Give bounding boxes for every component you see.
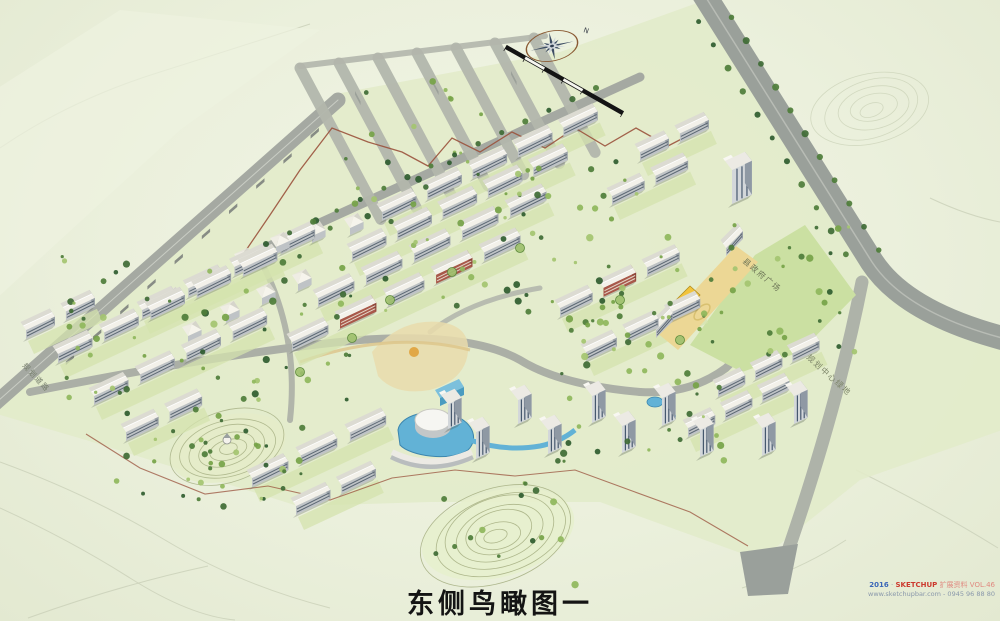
compass-north-label: N [582,26,589,35]
architectural-rendering-canvas: 规划道路 县政府广场 规划中心绿地 N 东侧鸟瞰图一 2016 · SKETCH… [0,0,1000,621]
watermark-year: 2016 [869,581,888,589]
view-title: 东侧鸟瞰图一 [0,582,1000,621]
site-plan-svg: 规划道路 县政府广场 规划中心绿地 N [0,0,1000,621]
watermark-line1: 2016 · SKETCHUP 扩展资料 VOL.46 [868,581,995,590]
site-ground [0,2,1000,560]
watermark-brand: SKETCHUP [895,581,937,589]
watermark: 2016 · SKETCHUP 扩展资料 VOL.46 www.sketchup… [868,581,995,599]
watermark-series: 扩展资料 VOL.46 [940,581,995,589]
watermark-line2: www.sketchupbar.com - 0945 96 88 80 [868,590,995,599]
watermark-separator: · [891,581,893,589]
